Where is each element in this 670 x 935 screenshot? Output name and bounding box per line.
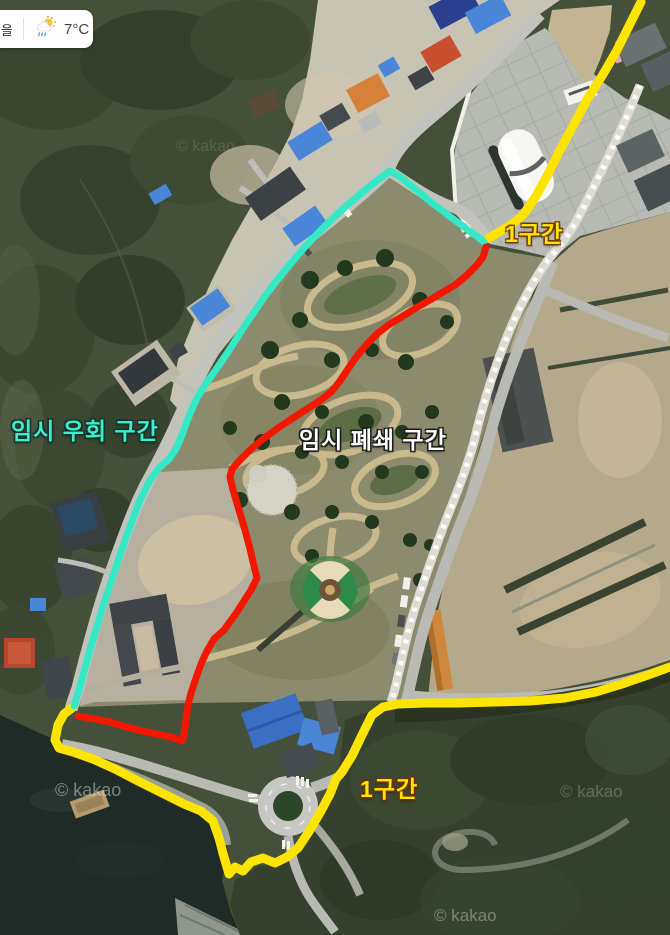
weather-widget[interactable]: 을 7°C xyxy=(0,10,93,48)
satellite-map-canvas[interactable] xyxy=(0,0,670,935)
map-screen: 1구간1구간임시 우회 구간임시 폐쇄 구간© kakao© kakao© ka… xyxy=(0,0,670,935)
weather-location-partial: 을 xyxy=(1,20,12,39)
widget-divider xyxy=(23,18,24,40)
sun-rain-cloud-icon xyxy=(33,15,57,44)
temperature-label: 7°C xyxy=(64,21,89,38)
